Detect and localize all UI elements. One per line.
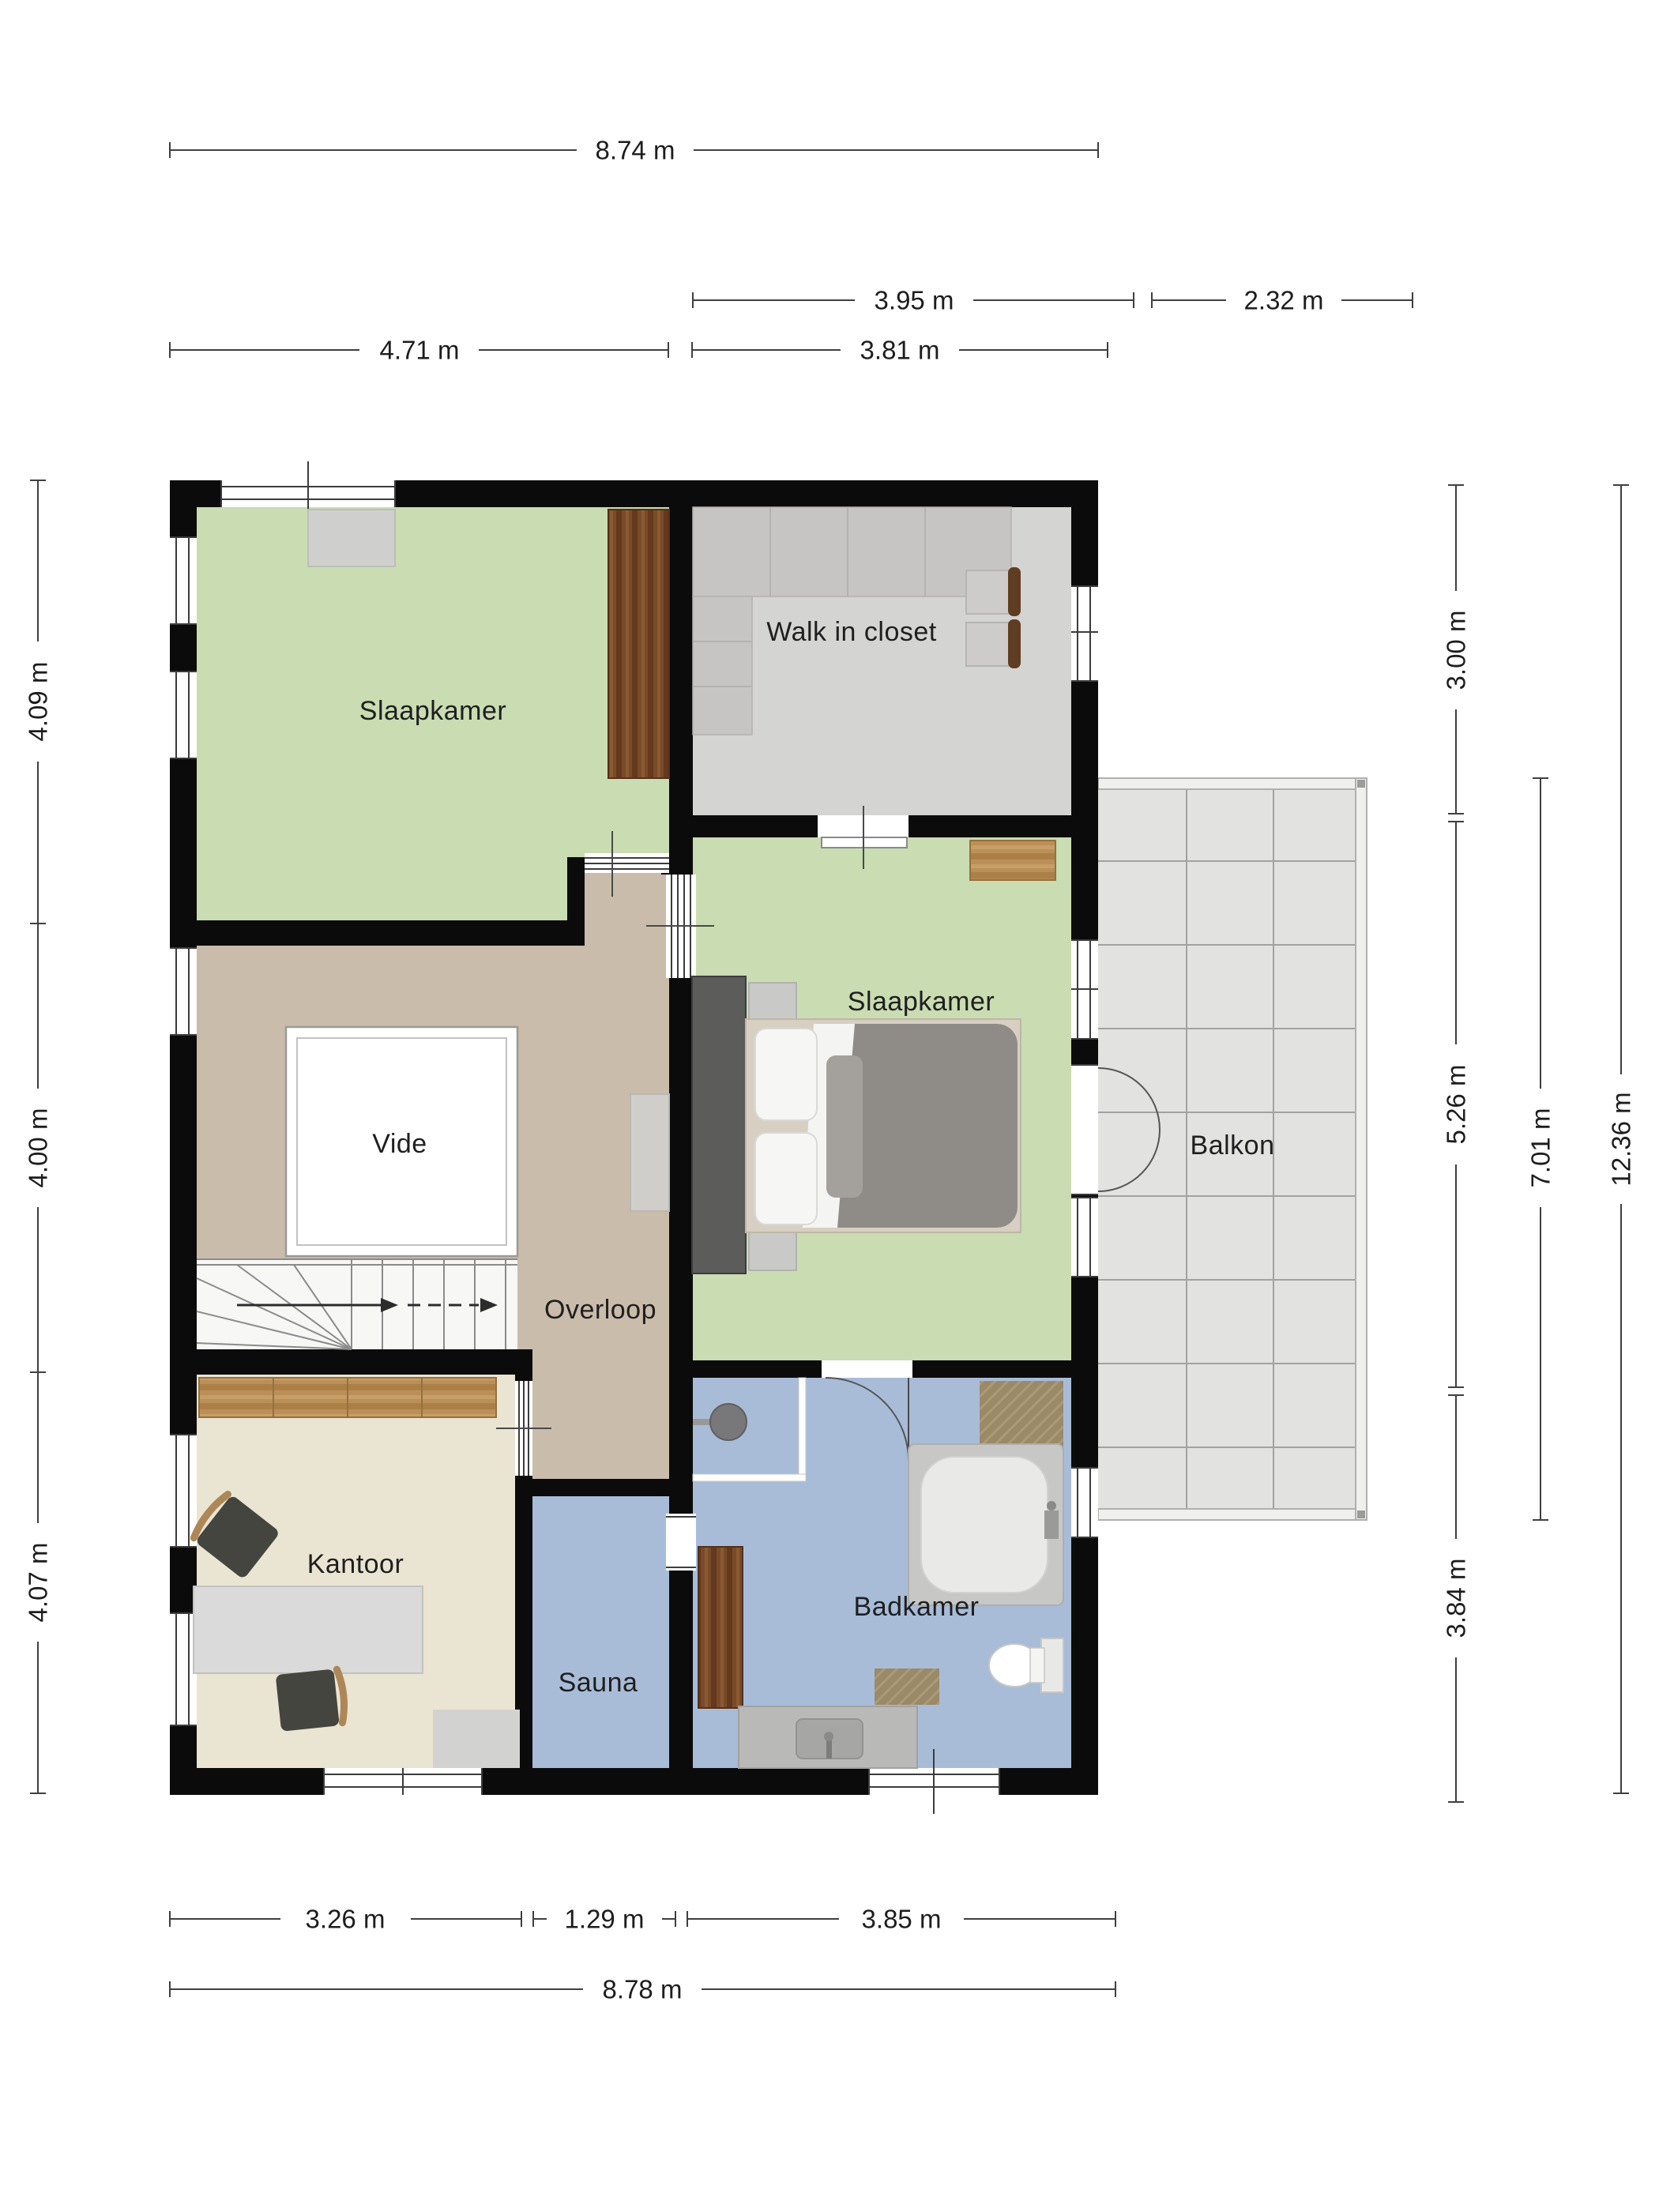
- bath-mat-icon: [875, 1668, 939, 1705]
- dim-right-7-01: 7.01 m: [1526, 1108, 1556, 1188]
- dim-top-3-95: 3.95 m: [875, 286, 954, 315]
- double-bed-icon: [746, 1019, 1021, 1232]
- room-label-balkon: Balkon: [1191, 1130, 1275, 1161]
- window-icon: [1071, 1468, 1098, 1537]
- window-icon: [170, 537, 197, 624]
- dim-right-12-36: 12.36 m: [1607, 1092, 1636, 1186]
- floorplan-canvas: Slaapkamer Walk in closet Slaapkamer Vid…: [0, 0, 1659, 2212]
- dim-bottom-3-26: 3.26 m: [306, 1905, 386, 1934]
- desk-icon: [194, 1586, 423, 1673]
- stairs-icon: [197, 1259, 517, 1349]
- sideboard-icon: [199, 1378, 496, 1417]
- window-icon: [1071, 940, 1098, 1039]
- room-label-vide: Vide: [372, 1129, 427, 1159]
- window-icon: [1071, 1198, 1098, 1277]
- dim-right-3-84: 3.84 m: [1442, 1559, 1471, 1638]
- room-label-sauna: Sauna: [559, 1668, 638, 1698]
- stool-icon: [966, 619, 1021, 668]
- bathtub-icon: [908, 1444, 1063, 1605]
- dim-top-4-71: 4.71 m: [380, 336, 460, 365]
- window-icon: [170, 671, 197, 758]
- dim-right-5-26: 5.26 m: [1442, 1065, 1471, 1145]
- headboard-panel: [692, 976, 746, 1273]
- room-label-slaapkamer-2: Slaapkamer: [848, 987, 995, 1017]
- bath-mat-icon: [980, 1381, 1063, 1454]
- built-in-closet-icon: [308, 510, 395, 566]
- dim-bottom-1-29: 1.29 m: [565, 1905, 645, 1934]
- window-icon: [170, 1435, 197, 1547]
- dim-bottom-8-78: 8.78 m: [603, 1975, 683, 2004]
- room-sauna-floor: [532, 1496, 669, 1768]
- window-icon: [170, 948, 197, 1035]
- room-label-badkamer: Badkamer: [854, 1592, 980, 1622]
- dim-right-3-00: 3.00 m: [1442, 611, 1471, 690]
- dim-left-4-00: 4.00 m: [24, 1108, 53, 1188]
- desk-icon: [970, 841, 1055, 880]
- door-swing-icon: [666, 1514, 696, 1571]
- window-icon: [170, 1613, 197, 1725]
- room-label-walk-in-closet: Walk in closet: [766, 617, 937, 647]
- stool-icon: [966, 567, 1021, 616]
- cabinet-icon: [630, 1094, 669, 1211]
- rug-icon: [433, 1710, 520, 1768]
- room-label-overloop: Overloop: [544, 1295, 656, 1325]
- dim-bottom-3-85: 3.85 m: [862, 1905, 942, 1934]
- wardrobe-icon: [608, 510, 669, 778]
- window-icon: [1071, 586, 1098, 681]
- vanity-sink-icon: [739, 1706, 917, 1768]
- dim-top-8-74: 8.74 m: [596, 136, 675, 165]
- dim-left-4-07: 4.07 m: [24, 1543, 53, 1623]
- dim-top-2-32: 2.32 m: [1244, 286, 1324, 315]
- window-icon: [324, 1768, 482, 1795]
- room-label-slaapkamer-1: Slaapkamer: [359, 696, 506, 726]
- cabinet-icon: [698, 1547, 743, 1708]
- dim-left-4-09: 4.09 m: [24, 662, 53, 742]
- room-label-kantoor: Kantoor: [307, 1549, 404, 1579]
- dim-top-3-81: 3.81 m: [860, 336, 940, 365]
